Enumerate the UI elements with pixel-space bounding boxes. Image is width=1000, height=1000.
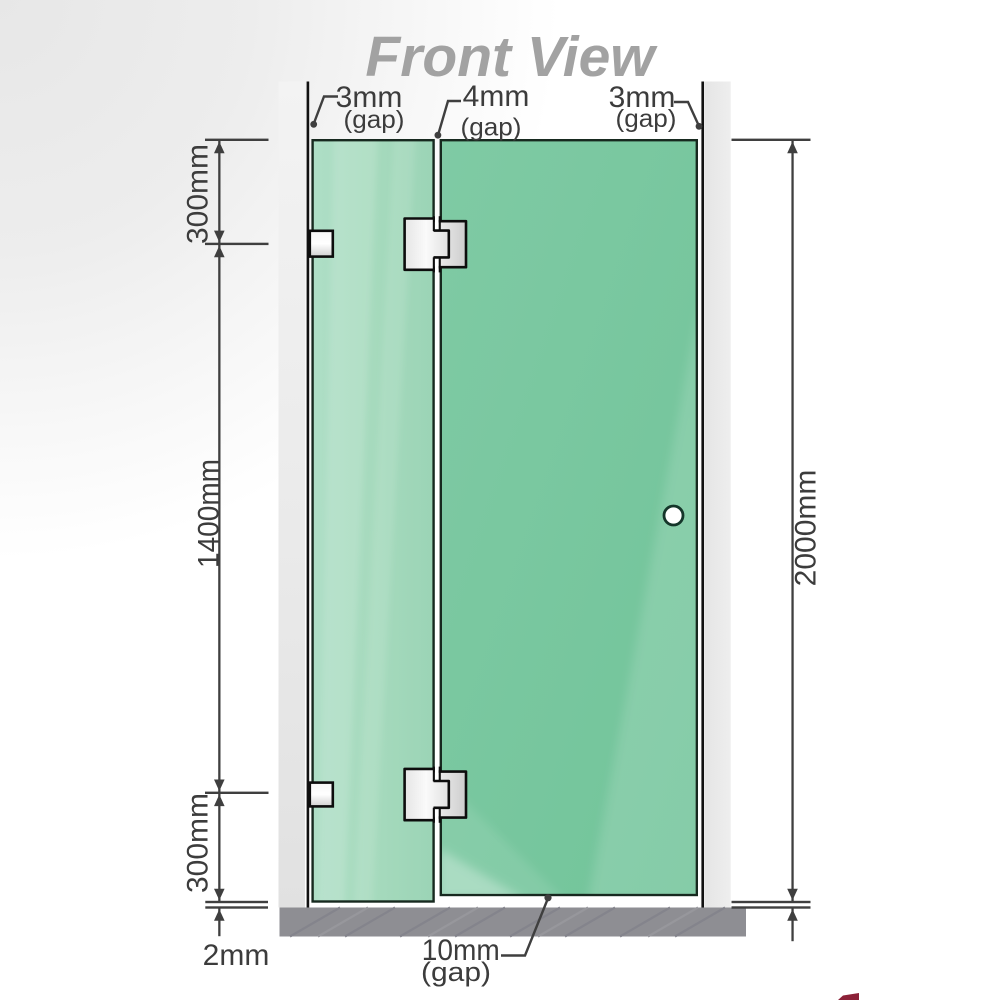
svg-text:2000mm: 2000mm [790, 470, 823, 587]
svg-text:(gap): (gap) [616, 105, 677, 133]
svg-text:1400mm: 1400mm [192, 459, 225, 568]
svg-text:2mm: 2mm [203, 939, 270, 972]
svg-text:(gap): (gap) [421, 957, 491, 987]
svg-text:(gap): (gap) [461, 114, 522, 142]
svg-text:(gap): (gap) [344, 106, 405, 134]
svg-text:300mm: 300mm [182, 793, 215, 893]
svg-text:4mm: 4mm [463, 80, 530, 113]
svg-text:300mm: 300mm [182, 144, 215, 244]
